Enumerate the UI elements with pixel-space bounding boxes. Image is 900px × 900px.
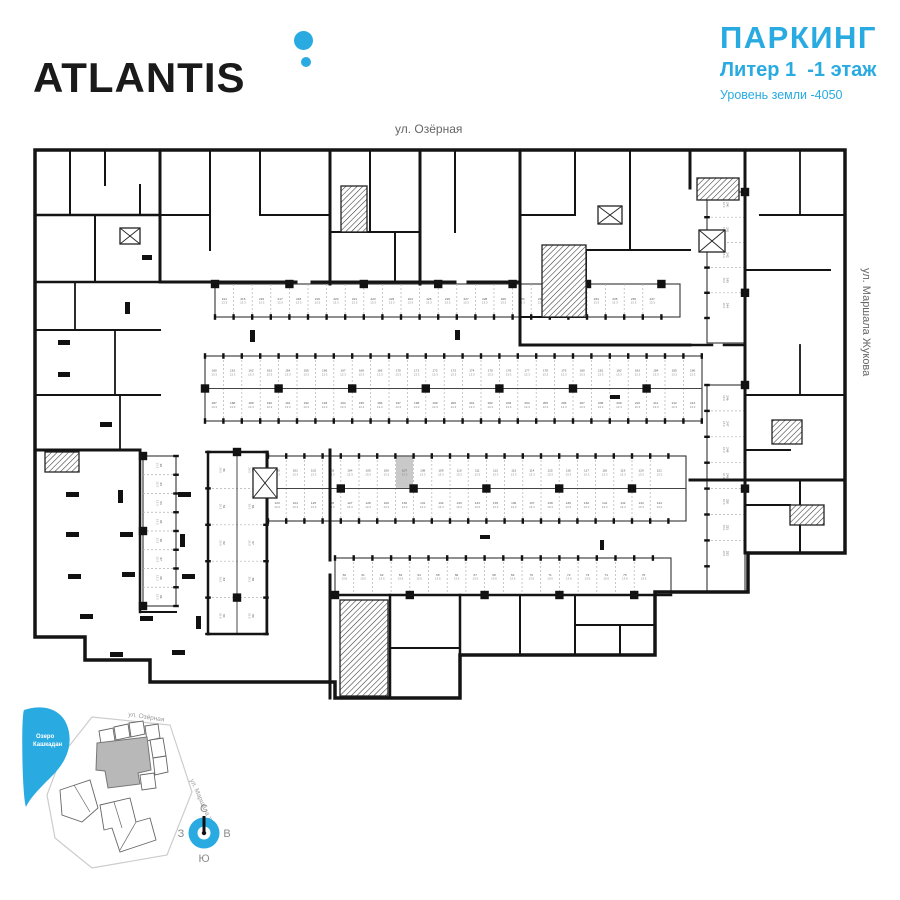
stall-area: 18.0 [722, 447, 726, 453]
stall-area: 13.3 [451, 372, 457, 376]
column [58, 372, 70, 377]
stall-area: 13.3 [414, 405, 420, 409]
stall-row-row-d: 6013.66113.66213.66313.66413.66513.66613… [331, 555, 671, 599]
stall-area: 26.5 [247, 540, 251, 546]
stall-area: 13.3 [456, 472, 462, 476]
stall-area: 13.3 [487, 405, 493, 409]
compass-west-label: З [178, 828, 185, 840]
stall-tick [277, 353, 279, 359]
stall-tick [649, 453, 651, 459]
stall-tick [535, 353, 537, 359]
stall-area: 13.3 [365, 472, 371, 476]
stairs-icon [341, 186, 367, 232]
stall-tick [485, 518, 487, 524]
stall-area: 13.3 [547, 472, 553, 476]
stall-area: 13.3 [671, 372, 677, 376]
stall-area: 13.3 [155, 481, 159, 487]
site-map: Озеро Кашкадан ул. Озёрная ул. Маршала Ж… [22, 707, 220, 868]
stall-area: 13.3 [395, 372, 401, 376]
building-outline [129, 721, 145, 737]
stall-area: 13.3 [543, 372, 549, 376]
stall-tick [381, 314, 383, 320]
stall-area: 13.3 [620, 472, 626, 476]
stall-tick [704, 565, 710, 567]
stall-area: 13.3 [445, 301, 451, 305]
stall-tick [321, 518, 323, 524]
stall-row-row-a: 21413.321513.321613.321713.321813.321913… [211, 280, 680, 320]
stall-tick [535, 418, 537, 424]
stall-tick [173, 474, 179, 476]
stall-area: 13.3 [593, 301, 599, 305]
column [201, 384, 209, 392]
stall-tick [333, 418, 335, 424]
stall-area: 13.3 [529, 472, 535, 476]
stall-tick [285, 453, 287, 459]
building-outline [114, 724, 130, 740]
stall-area: 13.3 [451, 405, 457, 409]
stall-area: 13.3 [277, 301, 283, 305]
stall-tick [613, 453, 615, 459]
stall-area: 13.3 [631, 301, 637, 305]
stall-tick [449, 453, 451, 459]
stall-tick [576, 453, 578, 459]
stall-tick [503, 453, 505, 459]
stall-area: 13.3 [493, 472, 499, 476]
stall-tick [590, 418, 592, 424]
column [250, 330, 255, 342]
column [178, 492, 191, 497]
stall-area: 13.3 [322, 372, 328, 376]
stall-area: 13.3 [602, 472, 608, 476]
stall-tick [456, 314, 458, 320]
stall-area: 13.6 [416, 577, 422, 581]
stall-tick [314, 418, 316, 424]
stall-tick [645, 353, 647, 359]
stall-tick [558, 518, 560, 524]
stall-area: 13.3 [420, 505, 426, 509]
stall-area: 13.3 [155, 538, 159, 544]
stall-area: 13.3 [292, 505, 298, 509]
stall-area: 13.3 [383, 505, 389, 509]
stall-area: 13.6 [472, 577, 478, 581]
stall-tick [704, 487, 710, 489]
stall-tick [461, 418, 463, 424]
column [140, 616, 153, 621]
stall-tick [376, 453, 378, 459]
stall-tick [577, 555, 579, 561]
stall-area: 13.6 [491, 577, 497, 581]
stairs-icon [542, 245, 586, 317]
stall-area: 13.3 [377, 405, 383, 409]
stall-tick [173, 511, 179, 513]
stall-area: 13.3 [474, 505, 480, 509]
stall-area: 13.3 [285, 372, 291, 376]
stall-tick [609, 353, 611, 359]
stall-tick [173, 567, 179, 569]
stall-area: 13.3 [402, 505, 408, 509]
stall-area: 13.3 [377, 372, 383, 376]
stall-area: 13.3 [365, 505, 371, 509]
stall-tick [353, 555, 355, 561]
stall-tick [394, 453, 396, 459]
compass-north-label: С [200, 803, 208, 815]
stall-tick [704, 410, 710, 412]
stall-area: 13.3 [248, 372, 254, 376]
stall-area: 13.3 [221, 301, 227, 305]
stall-area: 13.3 [267, 372, 273, 376]
compass-east-label: В [223, 828, 230, 840]
column [142, 255, 152, 260]
stall-area: 13.3 [690, 405, 696, 409]
stall-tick [613, 518, 615, 524]
stall-tick [449, 518, 451, 524]
stall-area: 26.5 [247, 467, 251, 473]
stall-area: 13.3 [602, 505, 608, 509]
stall-area: 18.0 [722, 277, 726, 283]
stall-tick [627, 418, 629, 424]
stall-tick [296, 418, 298, 424]
stall-tick [204, 353, 206, 359]
column [337, 484, 345, 492]
stall-area: 13.3 [347, 505, 353, 509]
stall-tick [351, 418, 353, 424]
stall-area: 13.3 [649, 301, 655, 305]
building-outline [153, 756, 168, 775]
stall-tick [631, 453, 633, 459]
stall-area: 18.0 [722, 551, 726, 557]
stall-area: 13.6 [585, 577, 591, 581]
stall-area: 13.3 [469, 372, 475, 376]
column [642, 384, 650, 392]
stall-tick [303, 518, 305, 524]
stall-tick [314, 353, 316, 359]
stall-area: 13.3 [656, 505, 662, 509]
stall-area: 13.3 [311, 505, 317, 509]
stall-tick [465, 555, 467, 561]
stall-area: 13.3 [292, 472, 298, 476]
stall-tick [540, 453, 542, 459]
stall-area: 13.3 [230, 372, 236, 376]
stall-tick [406, 353, 408, 359]
stall-area: 13.3 [653, 405, 659, 409]
stall-area: 13.3 [463, 301, 469, 305]
column [122, 572, 135, 577]
stall-area: 13.3 [547, 505, 553, 509]
stall-area: 13.3 [285, 405, 291, 409]
stall-tick [596, 555, 598, 561]
stall-area: 13.3 [620, 505, 626, 509]
stall-area: 13.3 [493, 505, 499, 509]
stall-area: 13.3 [395, 405, 401, 409]
column [495, 384, 503, 392]
stall-area: 13.3 [561, 405, 567, 409]
stall-area: 13.6 [510, 577, 516, 581]
stall-tick [498, 353, 500, 359]
stall-tick [503, 518, 505, 524]
stall-area: 26.5 [218, 540, 222, 546]
stall-area: 13.3 [438, 472, 444, 476]
stall-tick [627, 353, 629, 359]
stall-area: 13.3 [506, 372, 512, 376]
stall-tick [173, 605, 179, 607]
stall-area: 13.3 [340, 405, 346, 409]
stall-tick [480, 353, 482, 359]
stall-tick [406, 418, 408, 424]
lake-label: Кашкадан [33, 742, 63, 748]
stall-tick [517, 353, 519, 359]
column [555, 484, 563, 492]
stall-tick [704, 292, 710, 294]
page: { "header": { "logo_text": "ATLANTIS", "… [0, 0, 900, 900]
stall-tick [351, 353, 353, 359]
stall-tick [553, 418, 555, 424]
stall-tick [701, 418, 703, 424]
stall-area: 13.3 [671, 405, 677, 409]
stall-area: 13.3 [211, 405, 217, 409]
stall-area: 26.5 [218, 504, 222, 510]
stall-tick [633, 555, 635, 561]
stall-tick [288, 314, 290, 320]
stall-tick [631, 518, 633, 524]
stall-tick [467, 453, 469, 459]
stall-area: 13.3 [352, 301, 358, 305]
stall-area: 13.3 [240, 301, 246, 305]
stall-tick [594, 453, 596, 459]
column [610, 395, 620, 399]
stall-tick [390, 555, 392, 561]
stall-area: 13.3 [438, 505, 444, 509]
stall-tick [321, 453, 323, 459]
stall-area: 13.3 [543, 405, 549, 409]
stall-tick [369, 418, 371, 424]
column [80, 614, 93, 619]
stall-area: 13.6 [603, 577, 609, 581]
stall-tick [474, 314, 476, 320]
stall-tick [642, 314, 644, 320]
stall-area: 13.3 [155, 500, 159, 506]
stall-area: 13.3 [311, 472, 317, 476]
stall-tick [222, 418, 224, 424]
stall-tick [704, 266, 710, 268]
stall-area: 13.3 [482, 301, 488, 305]
stall-area: 13.3 [155, 463, 159, 469]
stall-row-row-b: 16013.316113.316213.316313.316413.316513… [201, 353, 703, 424]
stall-tick [461, 353, 463, 359]
stall-area: 13.3 [303, 405, 309, 409]
stall-area: 13.6 [529, 577, 535, 581]
stall-area: 13.3 [347, 472, 353, 476]
stall-area: 13.3 [584, 472, 590, 476]
stall-tick [431, 518, 433, 524]
stall-tick [412, 453, 414, 459]
stall-area: 18.0 [722, 525, 726, 531]
stall-tick [358, 518, 360, 524]
stall-area: 13.6 [398, 577, 404, 581]
stall-area: 13.3 [432, 405, 438, 409]
column [628, 484, 636, 492]
compass: С Ю З В [178, 803, 231, 865]
stall-area: 13.3 [511, 472, 517, 476]
stall-tick [427, 555, 429, 561]
stall-area: 13.3 [635, 372, 641, 376]
stall-area: 13.3 [638, 505, 644, 509]
stall-tick [388, 418, 390, 424]
column [409, 484, 417, 492]
stall-area: 13.3 [426, 301, 432, 305]
stall-area: 13.3 [487, 372, 493, 376]
stall-tick [358, 453, 360, 459]
stall-tick [418, 314, 420, 320]
stall-tick [572, 418, 574, 424]
stall-tick [394, 518, 396, 524]
stall-tick [204, 418, 206, 424]
stall-area: 13.3 [565, 505, 571, 509]
stall-area: 13.3 [529, 505, 535, 509]
column [482, 484, 490, 492]
stall-tick [609, 418, 611, 424]
stall-tick [572, 353, 574, 359]
column [480, 535, 490, 539]
stall-area: 13.6 [622, 577, 628, 581]
stall-area: 13.3 [584, 505, 590, 509]
stall-tick [590, 353, 592, 359]
stall-area: 13.3 [579, 372, 585, 376]
stall-tick [363, 314, 365, 320]
stall-area: 13.3 [690, 372, 696, 376]
stall-area: 13.3 [267, 405, 273, 409]
stall-area: 18.0 [722, 395, 726, 401]
stall-tick [623, 314, 625, 320]
stall-tick [344, 314, 346, 320]
stall-area: 13.6 [566, 577, 572, 581]
stall-tick [400, 314, 402, 320]
column [68, 574, 81, 579]
stall-tick [483, 555, 485, 561]
stall-area: 13.3 [414, 372, 420, 376]
stall-tick [443, 353, 445, 359]
stall-tick [517, 418, 519, 424]
stall-area: 13.3 [211, 372, 217, 376]
stall-tick [522, 518, 524, 524]
stall-area: 13.3 [612, 301, 618, 305]
stall-area: 18.0 [722, 421, 726, 427]
stall-tick [522, 453, 524, 459]
stall-tick [704, 384, 710, 386]
stairs-icon [772, 420, 802, 444]
stall-tick [540, 518, 542, 524]
stall-area: 13.6 [379, 577, 385, 581]
stall-area: 18.0 [722, 252, 726, 258]
column [66, 532, 79, 537]
stall-tick [333, 353, 335, 359]
column [196, 616, 201, 629]
stall-area: 13.3 [259, 301, 265, 305]
stall-area: 26.5 [218, 467, 222, 473]
stall-tick [540, 555, 542, 561]
stall-area: 13.6 [641, 577, 647, 581]
stall-tick [173, 586, 179, 588]
stall-area: 18.0 [722, 499, 726, 505]
stall-tick [498, 418, 500, 424]
stall-tick [558, 453, 560, 459]
stall-tick [259, 418, 261, 424]
stall-area: 13.3 [656, 472, 662, 476]
column [110, 652, 123, 657]
column [657, 280, 665, 288]
stall-tick [251, 314, 253, 320]
stairs-icon [45, 452, 79, 472]
stall-area: 13.3 [616, 405, 622, 409]
stall-area: 26.5 [247, 613, 251, 619]
stall-tick [649, 518, 651, 524]
stall-area: 13.3 [155, 519, 159, 525]
stall-area: 13.3 [474, 472, 480, 476]
stall-tick [704, 513, 710, 515]
stall-tick [222, 353, 224, 359]
stall-area: 13.3 [506, 405, 512, 409]
stall-tick [369, 353, 371, 359]
stall-area: 13.3 [469, 405, 475, 409]
stall-tick [371, 555, 373, 561]
stall-tick [667, 518, 669, 524]
stall-tick [259, 353, 261, 359]
stall-tick [388, 353, 390, 359]
column [569, 384, 577, 392]
stall-row-col-right-upper: 24018.024118.024218.024318.024418.0 [704, 188, 749, 343]
stall-tick [232, 314, 234, 320]
stall-area: 13.6 [547, 577, 553, 581]
stairs-icon [697, 178, 739, 200]
stall-tick [296, 353, 298, 359]
lake-label: Озеро [36, 734, 55, 740]
stall-tick [425, 418, 427, 424]
stall-area: 13.3 [598, 405, 604, 409]
stall-tick [553, 353, 555, 359]
stall-area: 13.6 [342, 577, 348, 581]
stall-area: 13.3 [370, 301, 376, 305]
column [455, 330, 460, 340]
stall-tick [340, 518, 342, 524]
stall-area: 13.3 [616, 372, 622, 376]
stall-tick [437, 314, 439, 320]
stall-tick [173, 549, 179, 551]
stall-area: 13.3 [598, 372, 604, 376]
stall-tick [664, 353, 666, 359]
column [58, 340, 70, 345]
stall-area: 13.3 [248, 405, 254, 409]
column [182, 574, 195, 579]
stall-tick [667, 453, 669, 459]
stall-tick [480, 418, 482, 424]
stall-tick [173, 530, 179, 532]
stall-area: 18.0 [722, 473, 726, 479]
stall-tick [325, 314, 327, 320]
stall-area: 13.6 [435, 577, 441, 581]
stall-tick [485, 453, 487, 459]
stall-tick [704, 436, 710, 438]
stall-tick [334, 555, 336, 561]
stall-area: 13.3 [314, 301, 320, 305]
column [66, 492, 79, 497]
stall-tick [443, 418, 445, 424]
stall-area: 13.3 [359, 372, 365, 376]
column [100, 422, 112, 427]
stall-tick [173, 455, 179, 457]
stall-tick [704, 216, 710, 218]
column [348, 384, 356, 392]
stall-tick [502, 555, 504, 561]
stall-area: 13.6 [360, 577, 366, 581]
